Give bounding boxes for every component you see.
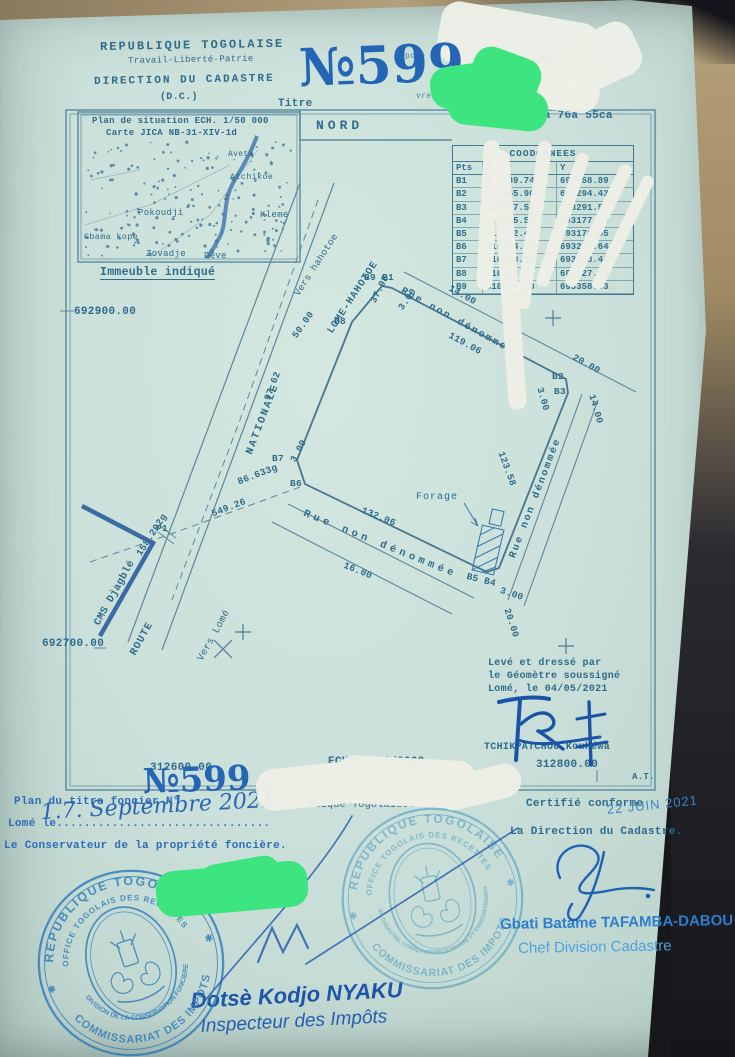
scanned-cadastral-document-photo: REPUBLIQUE TOGOLAISE Travail-Liberté-Pat… (0, 0, 735, 1057)
signatures-layer (0, 0, 735, 1057)
direction-signature (557, 846, 654, 920)
surveyor-signature (499, 698, 607, 765)
